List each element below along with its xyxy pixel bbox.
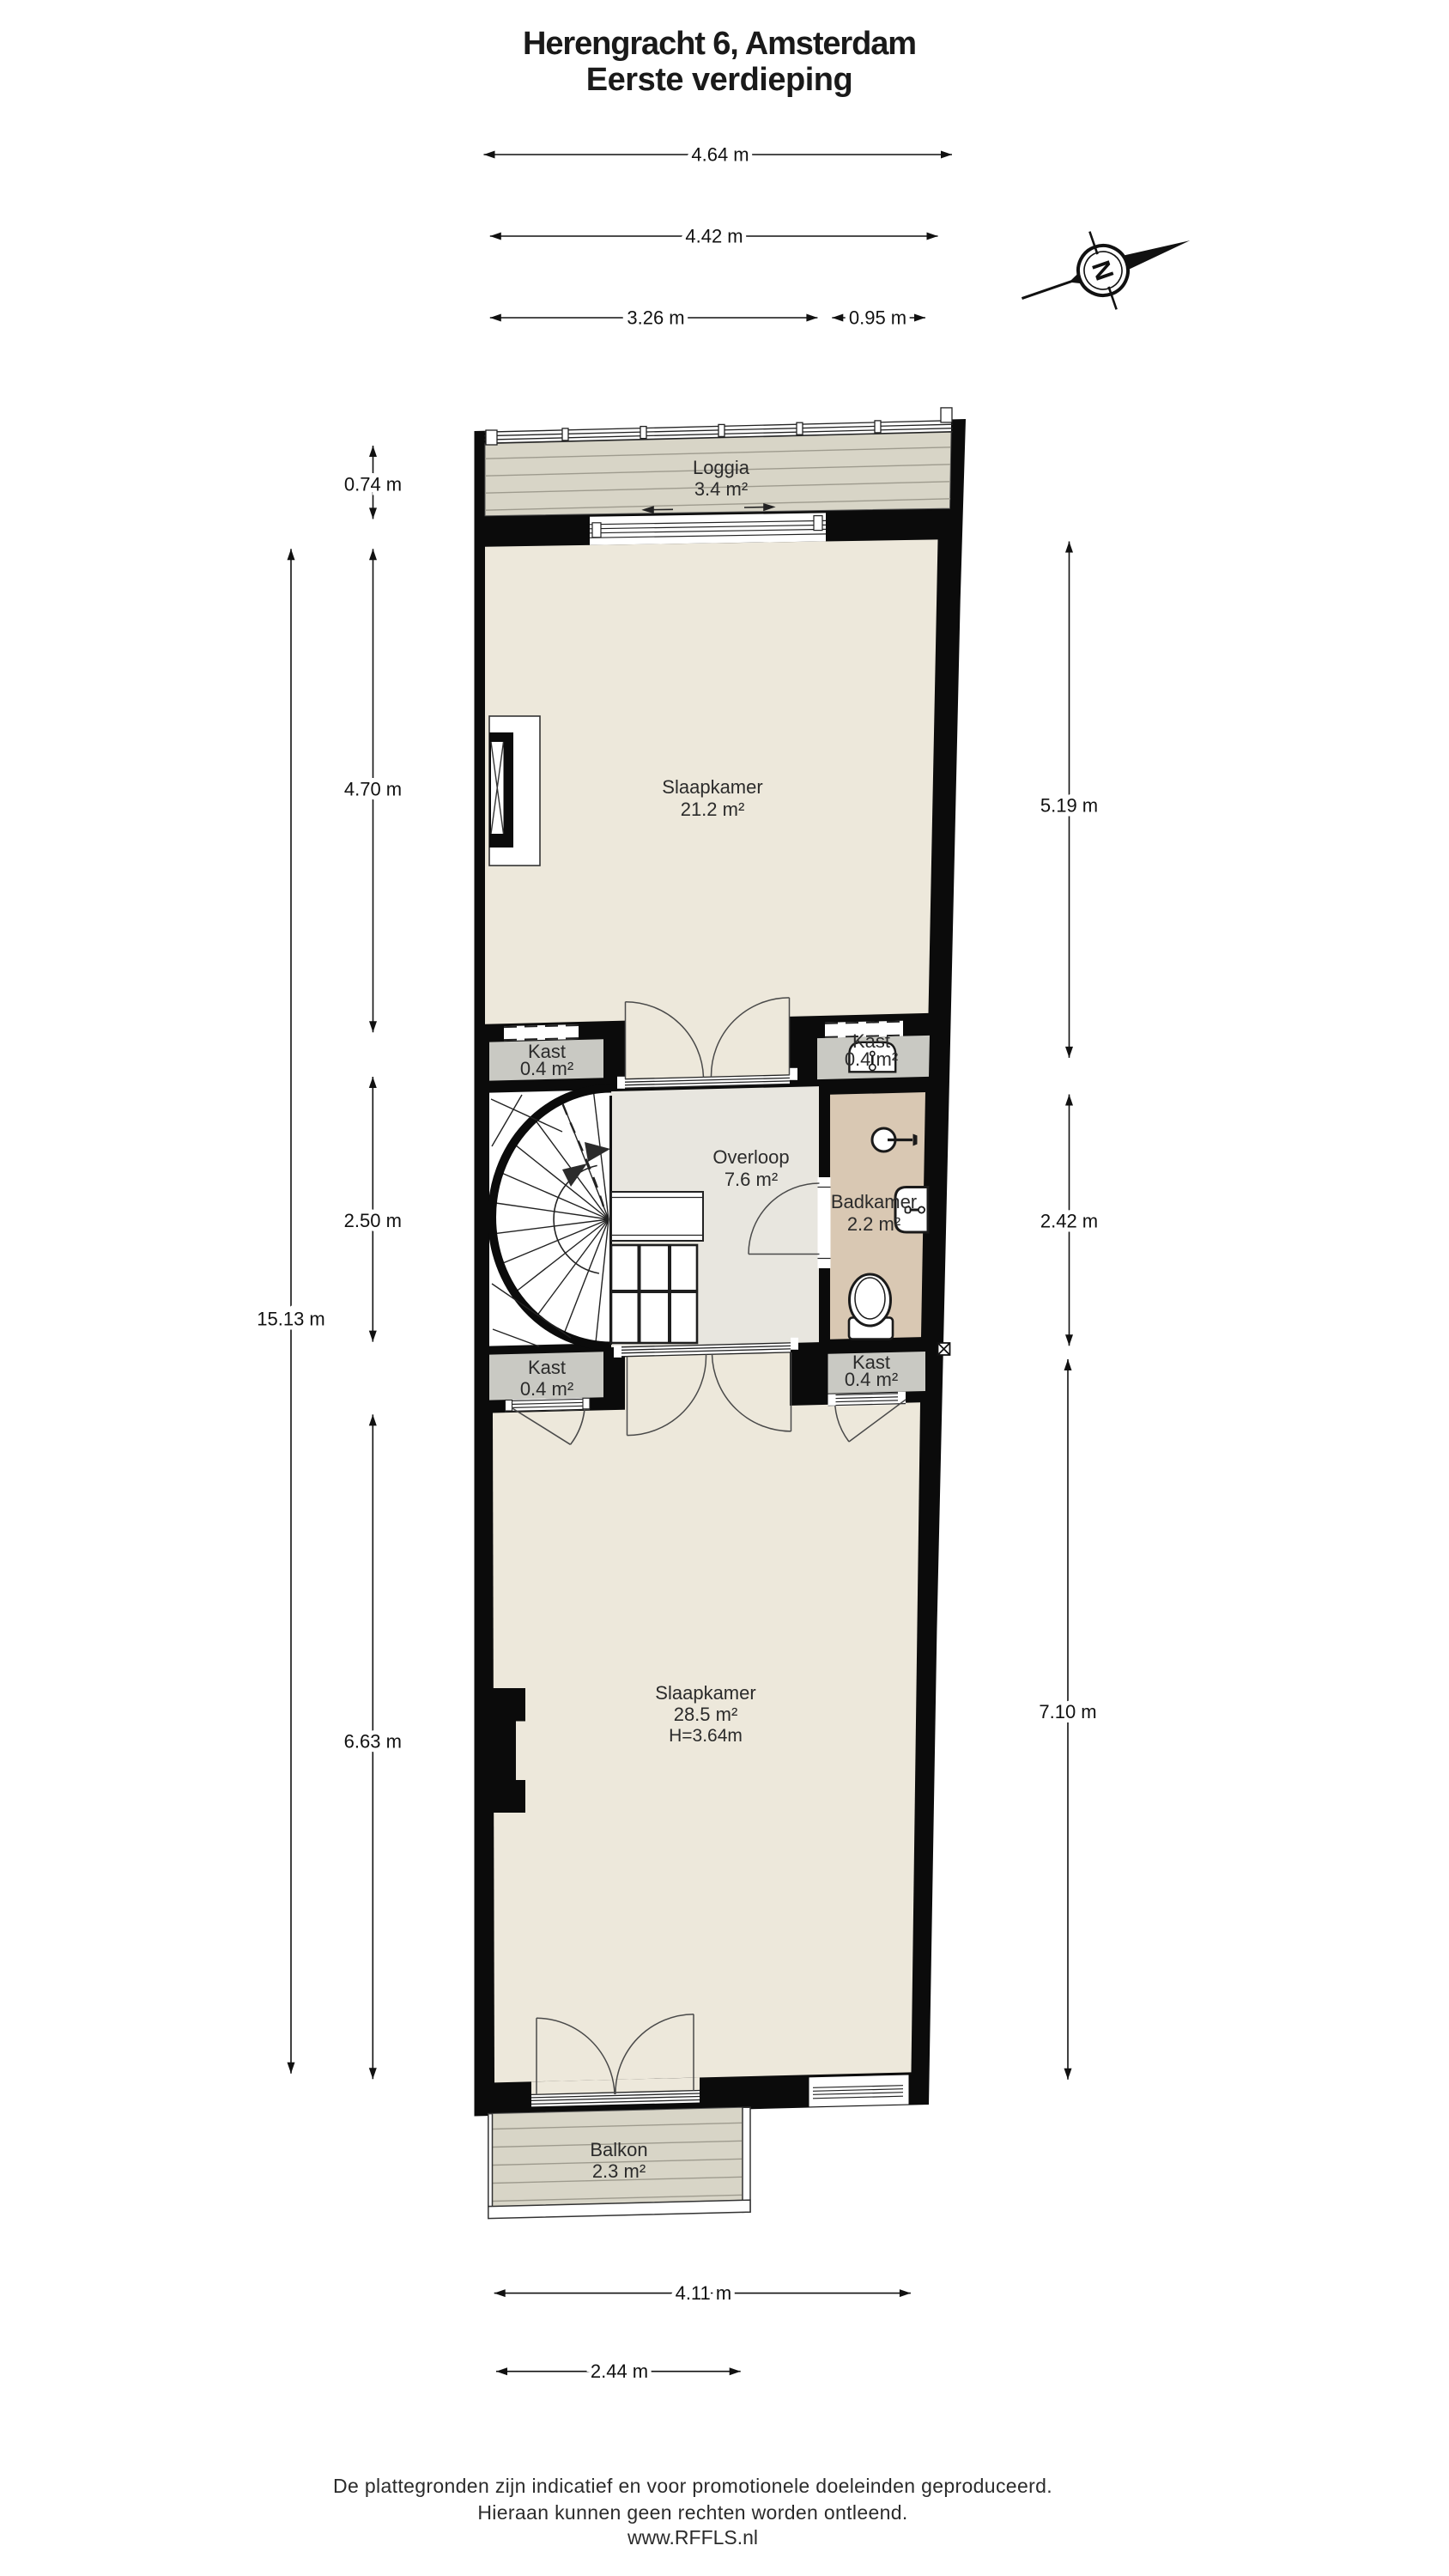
svg-text:4.42 m: 4.42 m — [685, 226, 743, 247]
svg-text:Loggia: Loggia — [693, 457, 750, 478]
svg-text:3.26 m: 3.26 m — [627, 307, 684, 329]
svg-text:Hieraan kunnen geen rechten wo: Hieraan kunnen geen rechten worden ontle… — [477, 2501, 907, 2524]
svg-text:4.70 m: 4.70 m — [344, 779, 402, 800]
svg-text:21.2 m²: 21.2 m² — [681, 799, 745, 820]
svg-text:2.50 m: 2.50 m — [344, 1210, 402, 1231]
svg-text:2.44 m: 2.44 m — [591, 2360, 648, 2382]
svg-text:Kast: Kast — [528, 1357, 566, 1378]
svg-text:7.6 m²: 7.6 m² — [724, 1169, 778, 1190]
svg-text:Herengracht 6, Amsterdam: Herengracht 6, Amsterdam — [523, 26, 916, 62]
svg-text:28.5 m²: 28.5 m² — [674, 1704, 738, 1725]
svg-text:Eerste verdieping: Eerste verdieping — [586, 62, 852, 98]
svg-text:2.2 m²: 2.2 m² — [847, 1213, 900, 1235]
svg-text:Badkamer: Badkamer — [831, 1191, 917, 1212]
svg-text:Slaapkamer: Slaapkamer — [655, 1682, 755, 1704]
svg-text:0.4 m²: 0.4 m² — [520, 1058, 573, 1079]
svg-text:0.74 m: 0.74 m — [344, 474, 402, 495]
svg-text:7.10 m: 7.10 m — [1039, 1701, 1096, 1722]
svg-text:3.4 m²: 3.4 m² — [694, 478, 748, 500]
svg-text:0.4 m²: 0.4 m² — [520, 1378, 573, 1400]
svg-text:www.RFFLS.nl: www.RFFLS.nl — [627, 2526, 758, 2549]
svg-text:0.95 m: 0.95 m — [849, 307, 906, 329]
svg-text:0.4 m²: 0.4 m² — [845, 1048, 898, 1070]
svg-text:De plattegronden zijn indicati: De plattegronden zijn indicatief en voor… — [333, 2475, 1052, 2497]
svg-text:6.63 m: 6.63 m — [344, 1730, 402, 1752]
svg-text:5.19 m: 5.19 m — [1040, 795, 1098, 817]
svg-text:H=3.64m: H=3.64m — [669, 1726, 743, 1746]
svg-text:4.11 m: 4.11 m — [676, 2282, 732, 2304]
svg-text:Slaapkamer: Slaapkamer — [662, 776, 762, 798]
svg-text:2.3 m²: 2.3 m² — [592, 2160, 646, 2182]
svg-text:2.42 m: 2.42 m — [1040, 1211, 1098, 1232]
svg-text:15.13 m: 15.13 m — [257, 1309, 325, 1330]
svg-text:4.64 m: 4.64 m — [691, 144, 749, 166]
svg-text:0.4 m²: 0.4 m² — [845, 1369, 898, 1390]
svg-text:Overloop: Overloop — [712, 1146, 789, 1168]
svg-text:Balkon: Balkon — [590, 2139, 647, 2160]
